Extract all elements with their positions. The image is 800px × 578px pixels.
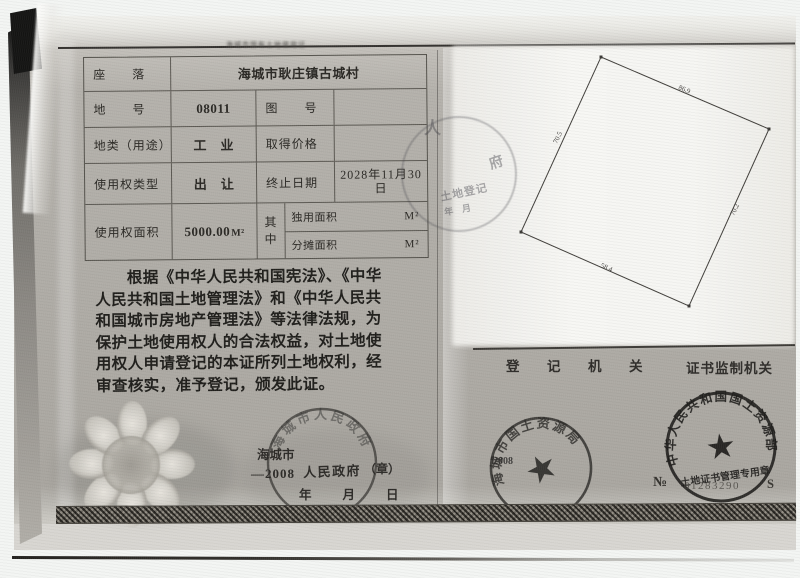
table-row-location: 座 落 海城市耿庄镇古城村 xyxy=(84,55,426,92)
bureau-seal-year: 2008 xyxy=(493,456,513,467)
rosette-center xyxy=(102,436,160,494)
serial-number: 01283290 xyxy=(684,480,740,492)
cell-parcel-label: 地 号 xyxy=(84,91,171,127)
parcel-vertex xyxy=(520,231,523,234)
area-amount: 5000.00 xyxy=(184,223,230,239)
parcel-polygon xyxy=(521,57,769,306)
cell-map-no-label: 图 号 xyxy=(256,90,334,126)
exclusive-area-row: 独用面积 M² xyxy=(285,202,427,232)
table-row-area: 使用权面积 5000.00 M² 其 中 独用面积 M² 分摊面积 M² xyxy=(85,202,427,260)
parcel-vertex xyxy=(768,128,771,131)
paragraph-line: 用权人申请登记的本证所列土地权利，经 xyxy=(96,351,422,375)
cell-land-use-value: 工 业 xyxy=(172,126,257,162)
edge-length-label-right: 70.2 xyxy=(729,202,742,217)
of-which-top: 其 xyxy=(264,214,277,231)
shared-area-row: 分摊面积 M² xyxy=(286,231,428,258)
cell-land-use-label: 地类（用途） xyxy=(85,127,172,163)
parcel-vertex xyxy=(688,305,691,308)
paragraph-line: 保护土地使用权人的合法权益，对土地使 xyxy=(96,330,422,354)
svg-text:海城市人民政府: 海城市人民政府 xyxy=(269,407,376,451)
paragraph-line: 人民共和国土地管理法》和《中华人民共 xyxy=(95,287,421,311)
microprint-header: 海城市国有土地使用证 xyxy=(226,40,366,50)
faint-stamp-char: 人 xyxy=(424,114,441,139)
cell-parcel-value: 08011 xyxy=(171,90,256,126)
cell-map-no-value xyxy=(334,89,426,125)
braided-border xyxy=(56,503,796,524)
paragraph-line: 根据《中华人民共和国宪法》、《中华 xyxy=(95,265,421,289)
expiry-date-line2: 日 xyxy=(375,181,388,195)
shared-area-unit: M² xyxy=(359,231,428,258)
star-icon: ★ xyxy=(703,427,738,468)
cell-location-label: 座 落 xyxy=(84,57,171,91)
certificate-supervisor-label: 证书监制机关 xyxy=(686,357,773,377)
cell-area-value: 5000.00 M² xyxy=(172,203,257,259)
serial-no-symbol: № xyxy=(653,475,667,491)
cell-location-value: 海城市耿庄镇古城村 xyxy=(171,55,426,90)
legal-paragraph: 根据《中华人民共和国宪法》、《中华 人民共和国土地管理法》和《中华人民共 和国城… xyxy=(95,265,422,397)
cell-of-which: 其 中 xyxy=(257,203,285,258)
cell-area-label: 使用权面积 xyxy=(85,204,172,260)
land-info-table: 座 落 海城市耿庄镇古城村 地 号 08011 图 号 地类（用途） 工 业 取… xyxy=(83,54,429,261)
registry-authority-label: 登 记 机 关 xyxy=(506,355,650,375)
cell-expiry-label: 终止日期 xyxy=(257,162,335,203)
page-bottom-margin xyxy=(14,524,796,550)
gov-seal-arc-text: 海城市人民政府 xyxy=(269,407,376,451)
paragraph-line: 和国城市房地产管理法》等法律法规，为 xyxy=(95,308,421,332)
serial-suffix: S xyxy=(767,477,774,492)
star-icon: ★ xyxy=(518,444,565,494)
edge-length-label-top: 86.9 xyxy=(677,83,692,95)
table-row-parcel-no: 地 号 08011 图 号 xyxy=(84,89,426,128)
scan-bottom-line xyxy=(12,556,794,562)
cell-right-type-value: 出 让 xyxy=(172,162,257,203)
parcel-sketch: 86.9 70.2 58.4 70.5 xyxy=(450,40,800,330)
shared-area-label: 分摊面积 xyxy=(286,232,359,259)
of-which-bottom: 中 xyxy=(265,231,278,248)
table-row-right-type: 使用权类型 出 让 终止日期 2028年11月30 日 xyxy=(85,161,427,205)
area-unit: M² xyxy=(231,228,245,239)
cell-area-breakdown: 独用面积 M² 分摊面积 M² xyxy=(285,202,427,258)
scanned-land-certificate: 海城市国有土地使用证 座 落 海城市耿庄镇古城村 地 号 08011 图 号 地… xyxy=(0,0,800,578)
table-row-land-use: 地类（用途） 工 业 取得价格 xyxy=(85,125,427,164)
paragraph-line: 审查核实，准予登记，颁发此证。 xyxy=(96,373,422,397)
exclusive-area-label: 独用面积 xyxy=(285,203,358,232)
cell-price-label: 取得价格 xyxy=(257,126,335,162)
cell-right-type-label: 使用权类型 xyxy=(85,163,172,204)
parcel-vertex xyxy=(600,56,603,59)
